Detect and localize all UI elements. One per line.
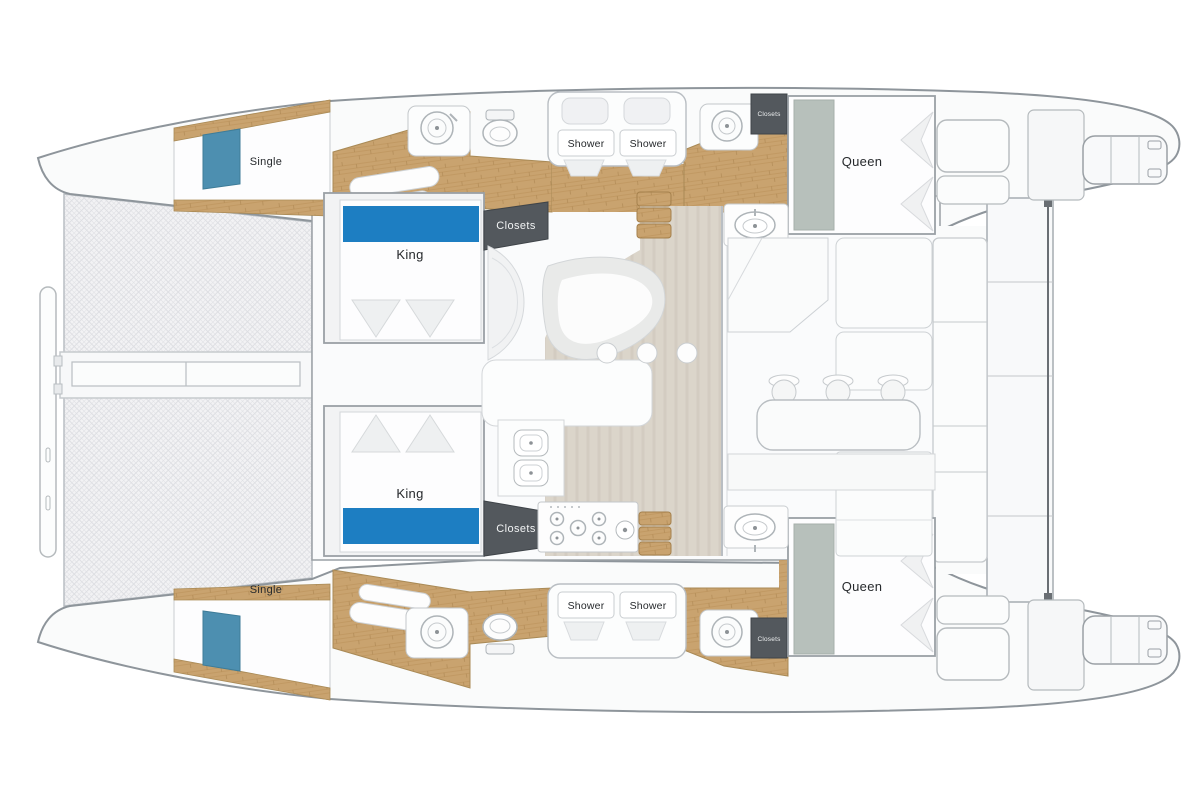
- king-bottom-label: King: [396, 486, 423, 501]
- galley-counter: [482, 360, 652, 426]
- closets-aft-starboard: Closets: [751, 618, 787, 658]
- helm-console-port: [1028, 110, 1084, 200]
- shower-top-right-label: Shower: [630, 138, 667, 150]
- queen-bottom-label: Queen: [842, 579, 883, 594]
- vanity-aft-starboard: [724, 506, 788, 552]
- shower-bottom-left-label: Shower: [568, 600, 605, 612]
- stool: [637, 343, 657, 363]
- foredeck-crossbeam: [54, 352, 312, 398]
- queen-top-label: Queen: [842, 154, 883, 169]
- steps-port: [637, 192, 671, 238]
- floor-plan-page: Shower Shower Closets: [0, 0, 1200, 800]
- stove: [538, 502, 638, 552]
- cabin-single-starboard: Single: [174, 584, 330, 700]
- king-bed-runner: [343, 206, 479, 242]
- cockpit-table: [757, 400, 920, 450]
- closets-aft-top-label: Closets: [757, 111, 781, 118]
- aft-bench: [933, 238, 987, 562]
- catamaran-floor-plan: Shower Shower Closets: [0, 0, 1200, 800]
- queen-headboard: [794, 524, 834, 654]
- shower-bottom-right-label: Shower: [630, 600, 667, 612]
- steps-starboard: [639, 512, 671, 555]
- cabin-queen-aft-port: Queen: [788, 96, 935, 234]
- shower-block-starboard: Shower Shower: [548, 584, 686, 658]
- bowsprit-beam: [40, 287, 56, 557]
- cockpit-sofa: [836, 238, 932, 328]
- cockpit-step: [728, 454, 935, 490]
- king-bed-runner: [343, 508, 479, 544]
- single-top-label: Single: [250, 156, 282, 168]
- closets-salon-bottom-label: Closets: [496, 523, 536, 535]
- closets-aft-port: Closets: [751, 94, 787, 134]
- toilet-icon: [483, 110, 517, 146]
- single-bottom-label: Single: [250, 584, 282, 596]
- transom-platform: [987, 198, 1053, 602]
- trampoline-net: [64, 194, 312, 606]
- aft-deck: [933, 110, 1167, 690]
- cabin-single-port: Single: [174, 100, 330, 216]
- toilet-icon: [483, 614, 517, 654]
- stern-seat-port: [937, 120, 1009, 172]
- hatch-panel: [203, 129, 240, 189]
- closets-aft-bottom-label: Closets: [757, 636, 781, 643]
- queen-headboard: [794, 100, 834, 230]
- stern-seat-starboard: [937, 628, 1009, 680]
- stool: [677, 343, 697, 363]
- cabin-king-forward-port: King: [324, 193, 484, 343]
- cabin-king-forward-starboard: King: [324, 406, 484, 556]
- shower-top-left-label: Shower: [568, 138, 605, 150]
- hatch-panel: [203, 611, 240, 671]
- shower-block-port: Shower Shower: [548, 92, 686, 176]
- king-top-label: King: [396, 247, 423, 262]
- stool: [597, 343, 617, 363]
- closets-salon-top-label: Closets: [496, 220, 536, 232]
- helm-console-starboard: [1028, 600, 1084, 690]
